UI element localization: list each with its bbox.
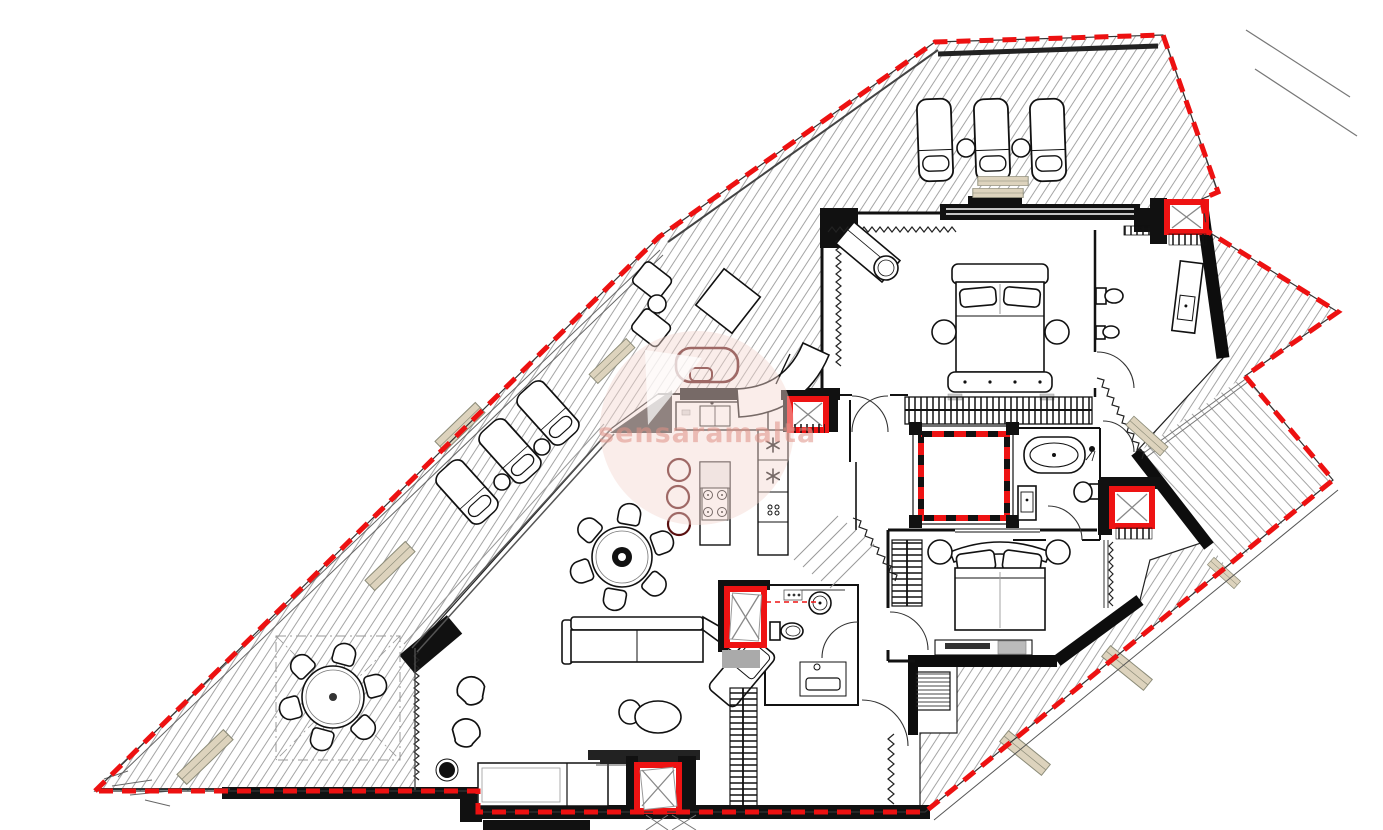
tv-unit-icon bbox=[935, 640, 1032, 655]
elevator-shaft-icon bbox=[1150, 198, 1206, 245]
floor-plan-canvas: sensaramalta bbox=[0, 0, 1383, 830]
bidet-icon bbox=[1096, 326, 1119, 339]
toilet-icon bbox=[1074, 482, 1099, 502]
sun-lounger-icon bbox=[917, 98, 954, 181]
side-table-icon bbox=[439, 762, 455, 778]
toilet-icon bbox=[1096, 288, 1123, 304]
planter-icon bbox=[978, 176, 1028, 185]
toilet-icon bbox=[770, 622, 803, 640]
coffee-table-icon bbox=[635, 701, 681, 733]
bathtub-icon bbox=[1024, 437, 1085, 473]
side-table-icon bbox=[957, 139, 975, 157]
floor-plan-drawing: sensaramalta bbox=[0, 0, 1383, 830]
side-table-icon bbox=[494, 474, 510, 490]
elevator-shaft-icon bbox=[1098, 477, 1160, 539]
double-bed-icon bbox=[952, 264, 1048, 372]
dining-table-icon bbox=[592, 527, 652, 587]
nightstand-icon bbox=[932, 320, 956, 344]
watermark-text: sensaramalta bbox=[598, 418, 816, 449]
planter-icon bbox=[1000, 731, 1051, 776]
sun-lounger-icon bbox=[974, 98, 1011, 181]
neighbor-boundary-lines bbox=[1246, 30, 1357, 136]
side-table-icon bbox=[1012, 139, 1030, 157]
side-table-icon bbox=[534, 439, 550, 455]
ac-louver-icon bbox=[916, 672, 950, 710]
nightstand-icon bbox=[928, 540, 952, 564]
bedroom-window-band bbox=[940, 204, 1140, 220]
nightstand-icon bbox=[1045, 320, 1069, 344]
wardrobe-icon bbox=[892, 540, 922, 606]
sink-icon bbox=[1018, 486, 1036, 520]
wardrobe-band bbox=[905, 397, 1092, 424]
drying-rack-strip bbox=[730, 688, 757, 808]
courtyard-shaft bbox=[909, 422, 1019, 528]
planter-icon bbox=[1102, 646, 1153, 691]
nightstand-icon bbox=[1046, 540, 1070, 564]
planter-icon bbox=[973, 188, 1023, 197]
sun-lounger-icon bbox=[1030, 98, 1067, 181]
side-table-icon bbox=[648, 295, 666, 313]
